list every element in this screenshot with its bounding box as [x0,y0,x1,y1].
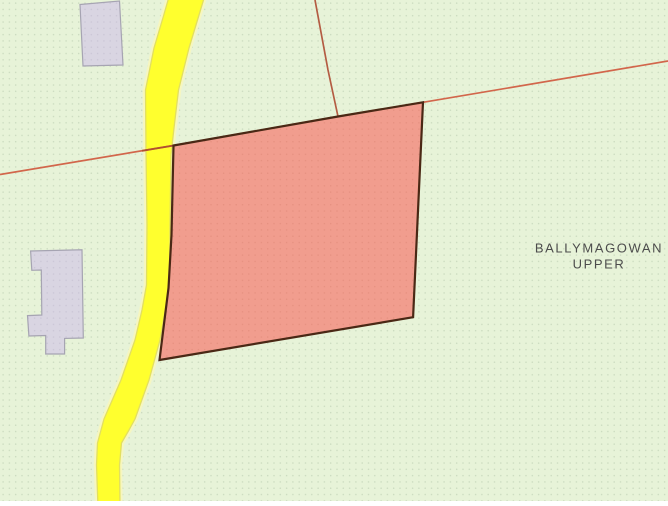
svg-text:UPPER: UPPER [573,257,626,272]
svg-text:BALLYMAGOWAN: BALLYMAGOWAN [535,241,663,256]
